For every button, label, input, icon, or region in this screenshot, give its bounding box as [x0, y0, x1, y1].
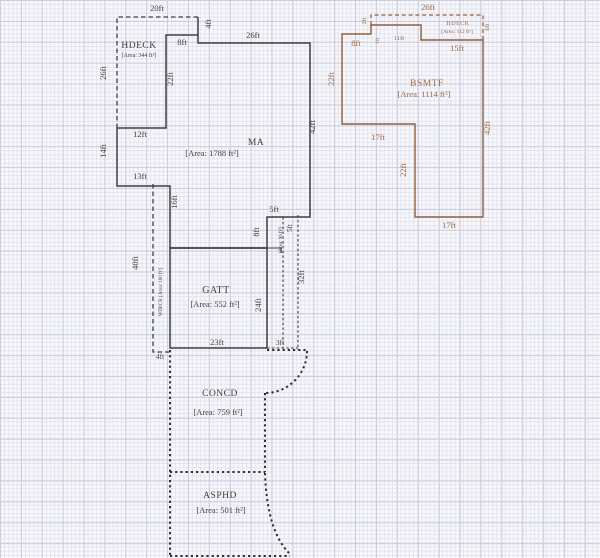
dim-label-13ft-8: 13ft: [133, 171, 147, 181]
dim-label-14ft-7: 14ft: [98, 144, 108, 158]
dim-label-3ft-17: 3ft: [276, 338, 285, 347]
hdeck-right-dashed-outline: [371, 15, 483, 40]
concd-name: CONCD: [202, 389, 238, 399]
dim-label-5ft-11: 5ft: [269, 204, 279, 214]
dim-label-8ft-12: 8ft: [251, 227, 261, 237]
dim-label-4ft-1: 4ft: [203, 19, 213, 29]
gatt-name: GATT: [202, 285, 230, 296]
bsmtf-name: BSMTF: [410, 79, 444, 89]
wdeck-strip-label: WDECK [Area: 160 ft²]: [158, 267, 164, 316]
dim-label-2ft-21: 2ft: [361, 17, 368, 24]
dim-label-6ft-25: 6ft: [484, 23, 491, 30]
hdeck-right-area: [Area: 112 ft²]: [441, 28, 473, 35]
asphd-curve: [265, 473, 290, 554]
floorplan-drawing: 20ft4ft8ft26ft26ft22ft12ft14ft13ft42ft16…: [0, 0, 600, 558]
floorplan-canvas: 20ft4ft8ft26ft26ft22ft12ft14ft13ft42ft16…: [0, 0, 600, 558]
ma-area: [Area: 1788 ft²]: [185, 148, 239, 158]
dim-label-42ft-9: 42ft: [307, 120, 317, 134]
dim-label-26ft-4: 26ft: [98, 66, 108, 80]
asphd-area: [Area: 501 ft²]: [196, 505, 245, 515]
ma-name: MA: [248, 138, 264, 148]
dim-label-22ft-27: 22ft: [326, 72, 336, 86]
hdeck-left-area: [Area: 344 ft²]: [122, 52, 157, 59]
dim-label-32ft-14: 32ft: [296, 270, 306, 284]
dim-label-17ft-31: 17ft: [442, 220, 456, 230]
dim-label-42ft-28: 42ft: [482, 121, 492, 135]
hdeck-right-name: HDECK: [446, 21, 469, 27]
dim-label-40ft-18: 40ft: [130, 256, 140, 270]
gatt-area: [Area: 552 ft²]: [190, 299, 239, 309]
concd-door-arc: [265, 351, 307, 393]
dim-label-20ft-0: 20ft: [150, 3, 164, 13]
asphd-name: ASPHD: [203, 491, 237, 501]
dim-label-26ft-3: 26ft: [246, 30, 260, 40]
bsmtf-area: [Area: 1114 ft²]: [398, 89, 451, 99]
bsmtf-outline: [342, 25, 483, 217]
gatt-outline: [170, 248, 267, 348]
dim-label-23ft-16: 23ft: [210, 337, 224, 347]
dim-label-24ft-15: 24ft: [253, 298, 263, 312]
dim-label-8ft-2: 8ft: [177, 37, 187, 47]
dim-label-8ft-22: 8ft: [351, 38, 361, 48]
label-layer: 20ft4ft8ft26ft26ft22ft12ft14ft13ft42ft16…: [98, 2, 492, 515]
hdeck-left-dashed-outline: [117, 17, 198, 128]
dim-label-15ft-26: 15ft: [450, 43, 464, 53]
dim-label-22ft-30: 22ft: [398, 163, 408, 177]
dim-label-4ft-19: 4ft: [156, 352, 165, 361]
dim-label-1ft-23: 1ft: [374, 37, 381, 44]
dim-label-11ft-24: 11ft: [394, 35, 404, 42]
dim-label-16ft-10: 16ft: [169, 195, 179, 209]
dim-label-5ft-13: 5ft: [286, 224, 294, 232]
hdeck-left-name: HDECK: [121, 41, 156, 51]
dim-label-17ft-29: 17ft: [371, 132, 385, 142]
concd-area: [Area: 759 ft²]: [193, 407, 242, 417]
porch-strip-label: [Area: 96 ft²]: [278, 226, 284, 253]
dim-label-26ft-20: 26ft: [421, 2, 435, 12]
dim-label-22ft-5: 22ft: [165, 72, 175, 86]
dim-label-12ft-6: 12ft: [133, 129, 147, 139]
